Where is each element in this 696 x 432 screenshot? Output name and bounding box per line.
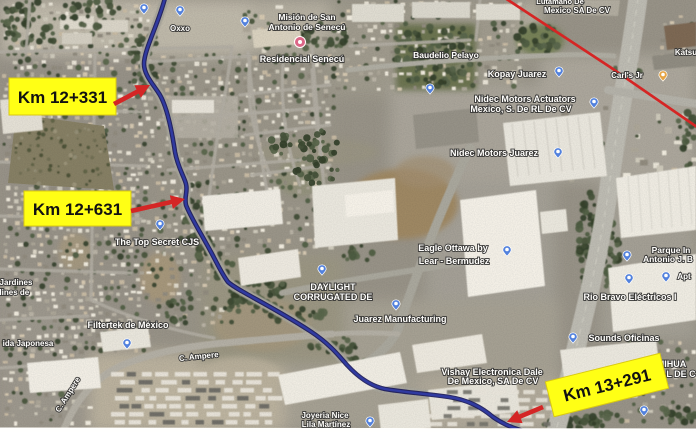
svg-text:Sounds Oficinas: Sounds Oficinas — [588, 333, 659, 343]
svg-text:Km 12+331: Km 12+331 — [18, 88, 107, 107]
svg-text:Mexico SA De CV: Mexico SA De CV — [544, 6, 611, 15]
svg-text:The Top Secret CJS: The Top Secret CJS — [115, 237, 199, 247]
svg-text:ida Japonesa: ida Japonesa — [3, 339, 54, 348]
svg-text:Carl's Jr: Carl's Jr — [611, 71, 643, 80]
svg-text:Misión de San: Misión de San — [278, 12, 335, 22]
svg-text:Lila Martínez: Lila Martínez — [302, 420, 350, 429]
svg-text:Lear - Bermudez: Lear - Bermudez — [419, 256, 490, 266]
svg-text:Baudelio Pelayo: Baudelio Pelayo — [413, 50, 479, 60]
svg-text:Filtertek de México: Filtertek de México — [87, 320, 169, 330]
svg-text:Rio Bravo Eléctricos I: Rio Bravo Eléctricos I — [583, 292, 676, 302]
svg-text:Eagle Ottawa by: Eagle Ottawa by — [418, 243, 488, 253]
svg-text:Jardines: Jardines — [0, 278, 33, 287]
svg-text:Oxxo: Oxxo — [170, 24, 190, 33]
svg-text:Kopay Juarez: Kopay Juarez — [488, 69, 547, 79]
svg-text:Lutamano De: Lutamano De — [536, 0, 584, 6]
svg-text:Residencial Senecú: Residencial Senecú — [260, 54, 345, 64]
svg-text:Nidec Motors Actuators: Nidec Motors Actuators — [474, 94, 575, 104]
svg-text:De Mexico, SA De CV: De Mexico, SA De CV — [448, 376, 539, 386]
svg-text:Apt: Apt — [677, 272, 691, 281]
svg-text:DAYLIGHT: DAYLIGHT — [310, 282, 356, 292]
svg-text:CORRUGATED DE: CORRUGATED DE — [294, 292, 373, 302]
svg-text:L DE C: L DE C — [666, 369, 696, 379]
svg-text:Antonio de Senecú: Antonio de Senecú — [269, 22, 346, 32]
svg-text:dines de: dines de — [0, 288, 30, 297]
svg-text:Mexico, S. De RL De CV: Mexico, S. De RL De CV — [470, 104, 571, 114]
svg-text:Katsu: Katsu — [675, 48, 696, 57]
svg-text:Nidec Motors Juarez: Nidec Motors Juarez — [450, 148, 539, 158]
svg-text:Km 12+631: Km 12+631 — [33, 200, 122, 219]
svg-text:Joyeria Nice: Joyeria Nice — [301, 411, 349, 420]
svg-text:Antonio J. B: Antonio J. B — [643, 254, 693, 264]
svg-text:Juarez Manufacturing: Juarez Manufacturing — [353, 314, 446, 324]
